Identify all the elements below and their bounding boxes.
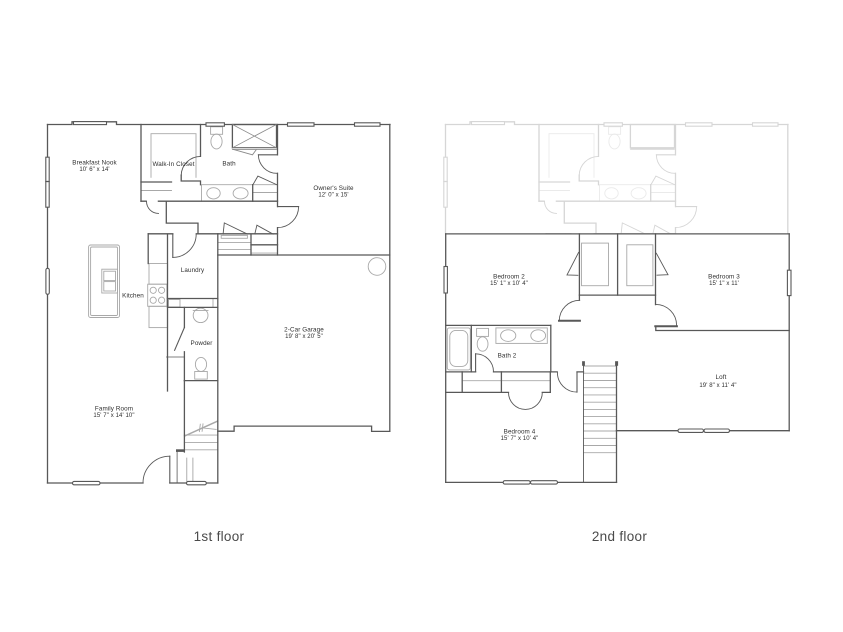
- svg-text:Loft: Loft: [716, 374, 727, 381]
- svg-text:12' 0" x 15': 12' 0" x 15': [318, 193, 348, 199]
- svg-text:15' 7" x 14' 10": 15' 7" x 14' 10": [93, 413, 134, 419]
- svg-text:Bedroom 2: Bedroom 2: [493, 274, 525, 281]
- svg-text:Powder: Powder: [191, 340, 213, 347]
- svg-text:19' 8" x 11' 4": 19' 8" x 11' 4": [699, 383, 736, 389]
- svg-text:Laundry: Laundry: [181, 267, 205, 274]
- svg-text:1st floor: 1st floor: [194, 529, 245, 544]
- svg-text:Family Room: Family Room: [95, 405, 133, 412]
- svg-text:Bath: Bath: [222, 161, 236, 168]
- svg-text:2-Car Garage: 2-Car Garage: [284, 326, 324, 333]
- svg-text:15' 1" x 11': 15' 1" x 11': [709, 281, 739, 287]
- svg-text:10' 6" x 14': 10' 6" x 14': [79, 167, 109, 173]
- svg-text:Bedroom 3: Bedroom 3: [708, 274, 740, 281]
- svg-text:19' 8" x 20' 5": 19' 8" x 20' 5": [285, 334, 323, 340]
- svg-text:Bath 2: Bath 2: [498, 353, 517, 360]
- svg-text:15' 7" x 10' 4": 15' 7" x 10' 4": [501, 436, 539, 442]
- svg-text:Breakfast Nook: Breakfast Nook: [72, 159, 117, 166]
- svg-text:15' 1" x 10' 4": 15' 1" x 10' 4": [490, 281, 528, 287]
- svg-text:Bedroom 4: Bedroom 4: [504, 428, 536, 435]
- svg-text:2nd floor: 2nd floor: [592, 529, 647, 544]
- svg-text:Kitchen: Kitchen: [122, 293, 144, 300]
- svg-text:Walk-In Closet: Walk-In Closet: [152, 161, 194, 168]
- svg-text:Owner's Suite: Owner's Suite: [313, 185, 354, 192]
